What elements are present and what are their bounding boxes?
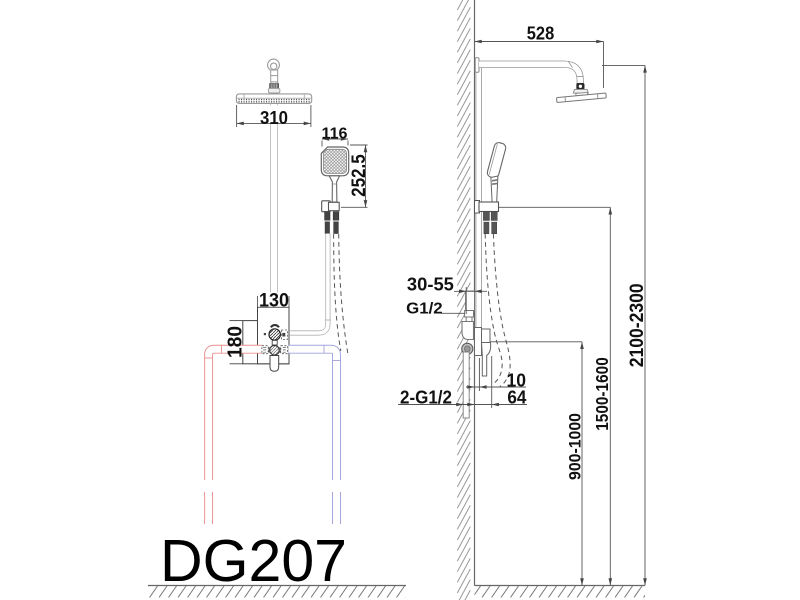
svg-text:2100-2300: 2100-2300 (627, 283, 648, 367)
svg-text:116: 116 (322, 126, 348, 143)
svg-text:2-G1/2: 2-G1/2 (400, 387, 452, 407)
svg-text:130: 130 (259, 290, 289, 311)
svg-text:1500-1600: 1500-1600 (592, 357, 612, 431)
svg-text:30-55: 30-55 (407, 274, 454, 295)
svg-text:310: 310 (260, 108, 288, 128)
svg-text:64: 64 (507, 387, 526, 407)
svg-text:252.5: 252.5 (349, 154, 370, 197)
svg-text:DG207: DG207 (160, 528, 347, 594)
svg-text:900-1000: 900-1000 (566, 413, 585, 480)
svg-text:528: 528 (527, 24, 555, 44)
svg-text:G1/2: G1/2 (406, 301, 443, 318)
svg-text:180: 180 (225, 326, 247, 358)
